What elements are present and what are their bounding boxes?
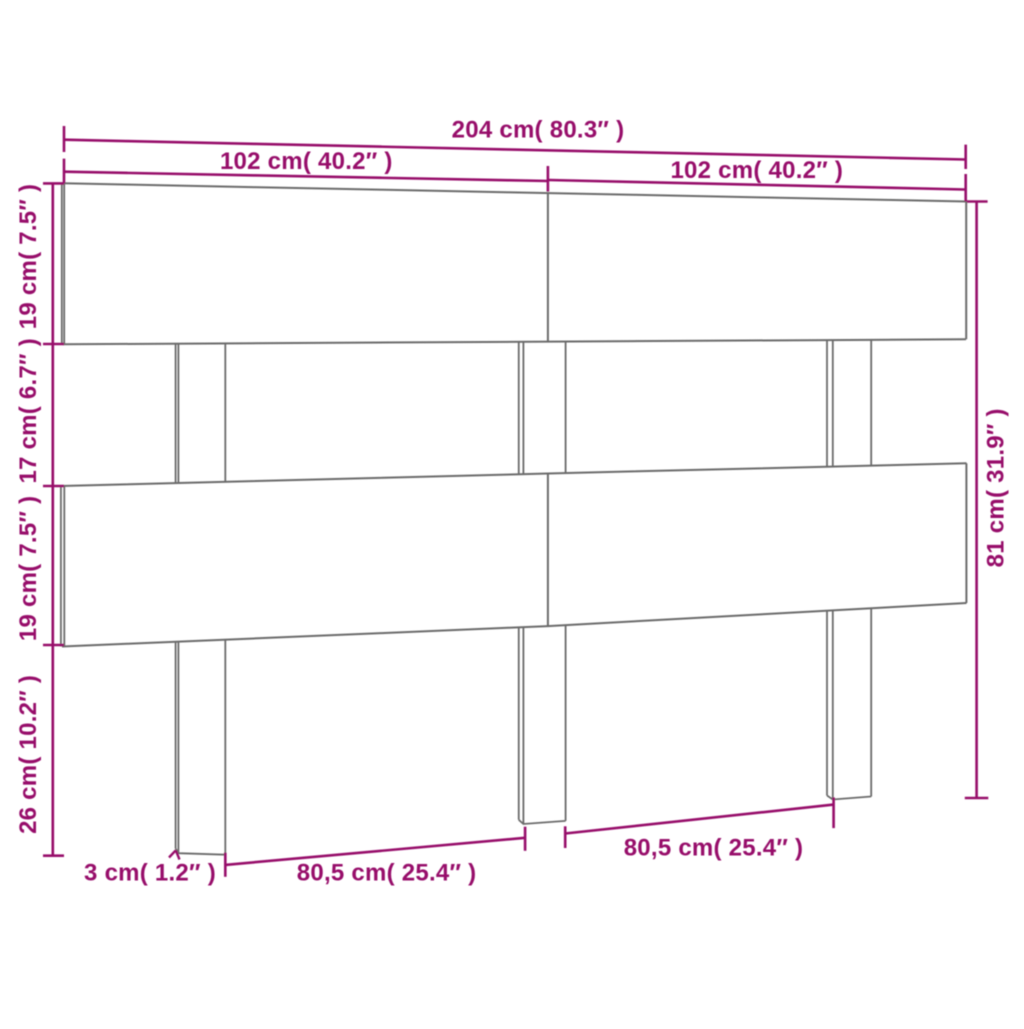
svg-text:80,5 cm( 25.4″ ): 80,5 cm( 25.4″ ) — [297, 859, 477, 886]
svg-text:204 cm( 80.3″ ): 204 cm( 80.3″ ) — [452, 117, 625, 144]
svg-text:19 cm( 7.5″ ): 19 cm( 7.5″ ) — [15, 496, 42, 641]
svg-text:19 cm( 7.5″ ): 19 cm( 7.5″ ) — [15, 184, 42, 329]
svg-text:102 cm( 40.2″ ): 102 cm( 40.2″ ) — [670, 157, 843, 184]
svg-text:102 cm( 40.2″ ): 102 cm( 40.2″ ) — [220, 148, 393, 175]
svg-text:26 cm( 10.2″ ): 26 cm( 10.2″ ) — [15, 675, 42, 834]
svg-text:81 cm( 31.9″ ): 81 cm( 31.9″ ) — [983, 408, 1010, 567]
svg-text:3 cm( 1.2″ ): 3 cm( 1.2″ ) — [84, 860, 216, 887]
svg-text:17 cm( 6.7″ ): 17 cm( 6.7″ ) — [15, 338, 42, 483]
svg-text:80,5 cm( 25.4″ ): 80,5 cm( 25.4″ ) — [624, 835, 804, 862]
